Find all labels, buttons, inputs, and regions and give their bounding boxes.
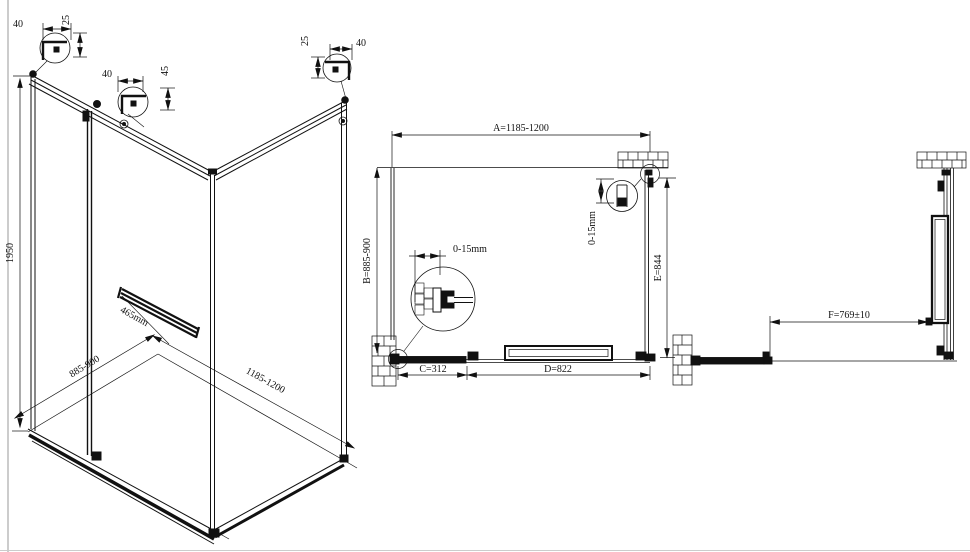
detail-tr-height-label: 25 [300, 36, 311, 46]
plan-dim-d-label: D=822 [544, 364, 572, 375]
wall-profile-side [691, 356, 700, 365]
wall-profile-detail [441, 291, 454, 308]
door-guide-right [636, 352, 646, 360]
fixed-panel-side [700, 358, 764, 365]
plan-dimensions [375, 131, 676, 380]
post-bottom-connector [209, 529, 219, 537]
side-view [673, 152, 966, 385]
technical-drawing: 1950 885-900 1185-1200 465mm 40 25 40 45… [0, 0, 970, 552]
stile-bottom-connector [340, 455, 348, 462]
wall-profile-plan-left [390, 354, 399, 364]
detail-tr-width-label: 40 [356, 38, 366, 49]
door-guide-left [468, 352, 478, 360]
plan-dim-c-label: C=312 [419, 364, 446, 375]
wall-bracket-plan [646, 170, 652, 175]
plan-view [372, 152, 668, 386]
post-cap [209, 169, 217, 174]
corner-connector-plan [645, 354, 655, 361]
detail-tl-height-label: 25 [61, 15, 72, 25]
panel-end-hardware [764, 357, 772, 364]
detail-wall-hatch [415, 283, 433, 315]
drawing-canvas: 1950 885-900 1185-1200 465mm 40 25 40 45… [0, 0, 970, 552]
door-bottom-roller [92, 452, 101, 460]
corner-ball-left [30, 71, 37, 78]
detail-mid-width-label: 40 [102, 69, 112, 80]
bottom-roller-side [937, 346, 944, 355]
plan-adjust-left-label: 0-15mm [453, 244, 487, 255]
iso-dimensions [12, 23, 355, 450]
towel-bar-side [932, 216, 948, 323]
iso-height-label: 1950 [5, 243, 16, 263]
side-dimensions [770, 316, 928, 360]
plan-dim-e-label: E=844 [653, 255, 664, 282]
detail-tl-width-label: 40 [13, 19, 23, 30]
wall-hatch-plan-top [618, 152, 668, 168]
wall-hatch-side-right [917, 152, 966, 168]
sliding-door-plan [505, 346, 612, 360]
plan-adjust-right-label: 0-15mm [587, 211, 598, 245]
door-top-roller [94, 101, 101, 108]
wall-hatch-side-left [673, 335, 692, 385]
plan-dim-a-label: A=1185-1200 [493, 123, 549, 134]
iso-view [28, 71, 357, 544]
door-hinge [83, 111, 89, 121]
corner-ball-right [342, 97, 349, 104]
top-bracket-side [942, 170, 950, 175]
detail-mid-height-label: 45 [160, 66, 171, 76]
plan-dim-b-label: B=885-900 [362, 238, 373, 284]
iso-width-label: 1185-1200 [244, 366, 287, 396]
side-dim-f-label: F=769±10 [828, 310, 870, 321]
